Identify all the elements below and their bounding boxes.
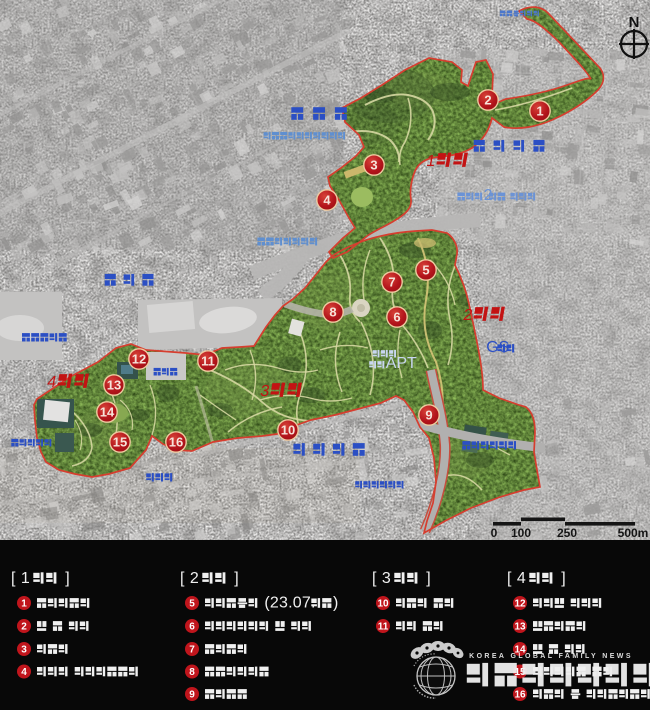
- svg-text:12: 12: [514, 599, 526, 610]
- svg-text:APT: APT: [386, 355, 417, 372]
- svg-text:9: 9: [189, 690, 195, 701]
- svg-text:3: 3: [21, 645, 27, 656]
- svg-text:]: ]: [65, 570, 70, 587]
- svg-text:13: 13: [107, 378, 121, 393]
- svg-text:[ 3: [ 3: [372, 570, 391, 587]
- svg-text:1: 1: [21, 599, 27, 610]
- svg-text:250: 250: [557, 526, 577, 540]
- svg-text:7: 7: [189, 645, 195, 656]
- svg-text:8: 8: [329, 305, 336, 320]
- svg-text:[ 1: [ 1: [11, 570, 30, 587]
- svg-text:[ 4: [ 4: [507, 570, 526, 587]
- svg-text:16: 16: [514, 690, 526, 701]
- svg-text:GS: GS: [486, 339, 509, 356]
- svg-text:12: 12: [132, 352, 146, 367]
- svg-text:]: ]: [561, 570, 566, 587]
- svg-text:4: 4: [21, 667, 27, 678]
- svg-text:5: 5: [422, 263, 429, 278]
- svg-text:6: 6: [393, 310, 400, 325]
- svg-text:]: ]: [426, 570, 431, 587]
- svg-text:]: ]: [234, 570, 239, 587]
- svg-text:500m: 500m: [618, 526, 649, 540]
- svg-text:14: 14: [100, 405, 115, 420]
- svg-text:16: 16: [169, 435, 183, 450]
- svg-text:10: 10: [377, 599, 389, 610]
- svg-text:2: 2: [484, 93, 491, 108]
- svg-text:0: 0: [491, 526, 498, 540]
- svg-text:7: 7: [388, 275, 395, 290]
- svg-text:5: 5: [189, 599, 195, 610]
- svg-text:6: 6: [189, 622, 195, 633]
- svg-text:2: 2: [484, 187, 493, 204]
- svg-text:11: 11: [378, 622, 389, 633]
- svg-text:9: 9: [425, 408, 432, 423]
- svg-text:): ): [333, 594, 339, 611]
- svg-text:4: 4: [323, 193, 331, 208]
- svg-text:15: 15: [113, 435, 127, 450]
- svg-text:2: 2: [21, 622, 27, 633]
- svg-text:100: 100: [511, 526, 531, 540]
- svg-text:1: 1: [536, 104, 543, 119]
- svg-text:11: 11: [201, 354, 215, 369]
- svg-text:KOREA GLOBAL FAMILY NEWS: KOREA GLOBAL FAMILY NEWS: [469, 653, 633, 660]
- svg-text:3: 3: [370, 158, 377, 173]
- svg-text:[ 2: [ 2: [180, 570, 199, 587]
- svg-text:8: 8: [189, 667, 195, 678]
- svg-text:10: 10: [281, 423, 295, 438]
- svg-text:N: N: [629, 14, 640, 31]
- svg-text:(23.07.: (23.07.: [264, 594, 315, 611]
- svg-text:13: 13: [514, 622, 526, 633]
